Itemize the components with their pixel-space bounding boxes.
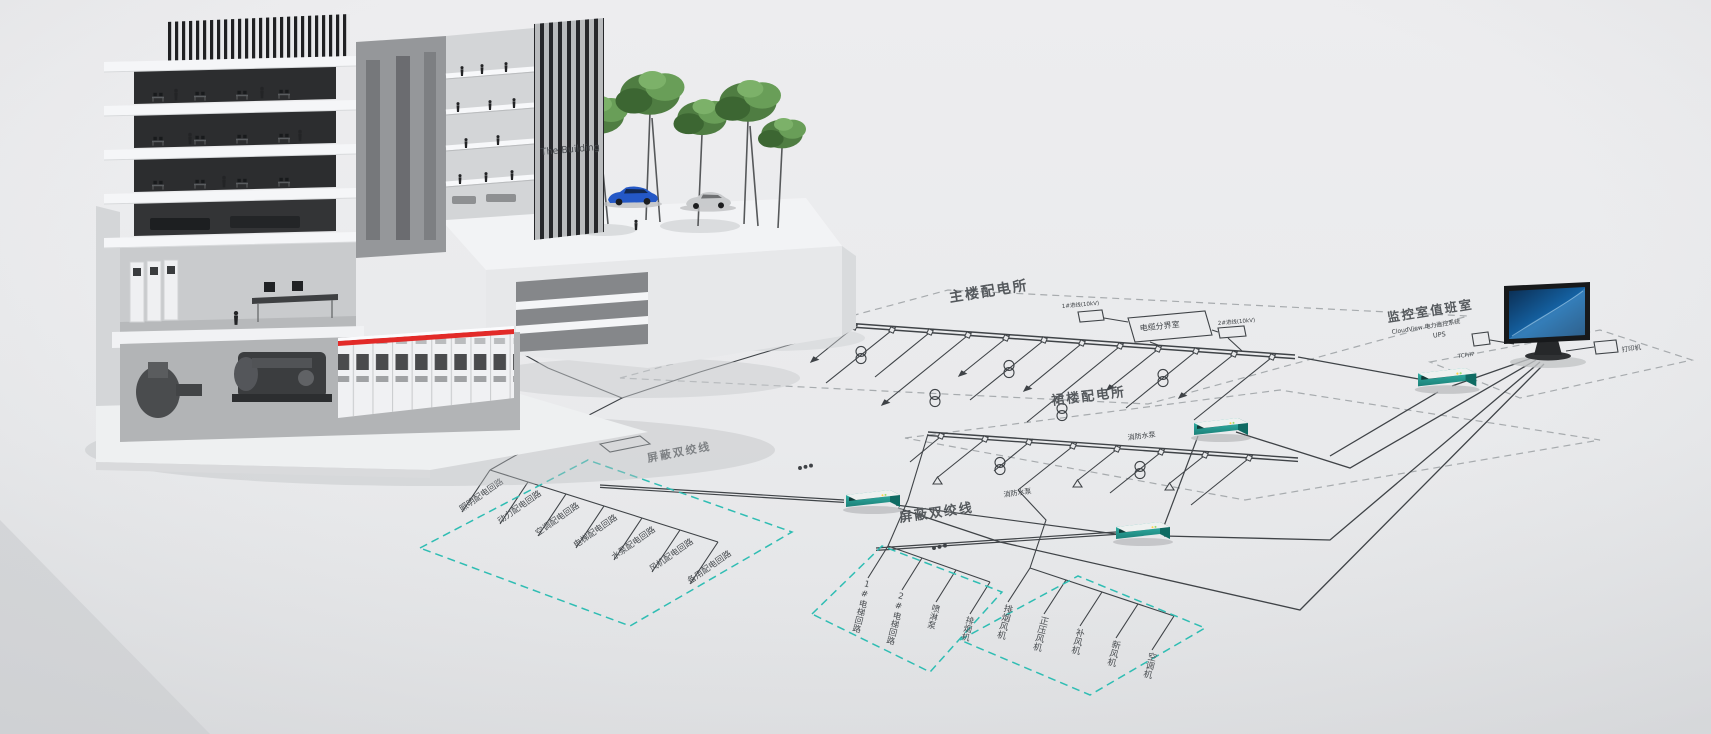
office-interior (134, 154, 336, 192)
lobby-sofa (452, 196, 476, 204)
podium-niche (516, 272, 648, 352)
podium-side (842, 246, 856, 336)
person-figure (234, 311, 238, 325)
tower-atrium (446, 28, 534, 220)
desk-monitor (292, 281, 303, 291)
office-interior (134, 110, 336, 148)
desk-monitor (264, 282, 275, 292)
server-rack (230, 216, 300, 228)
roof-fins (166, 14, 350, 62)
office-interior (134, 66, 336, 104)
generator (232, 352, 332, 402)
illustration: 主楼配电所 裙楼配电所 电缆分界室 1#进线(10kV) 2#进线(10kV) … (0, 0, 1711, 734)
lobby-sofa (486, 194, 516, 202)
person-figure (634, 220, 637, 230)
louver-screen (534, 18, 604, 240)
scene: 主楼配电所 裙楼配电所 电缆分界室 1#进线(10kV) 2#进线(10kV) … (0, 0, 1711, 734)
left-wall (96, 206, 120, 412)
server-rack (150, 218, 210, 230)
